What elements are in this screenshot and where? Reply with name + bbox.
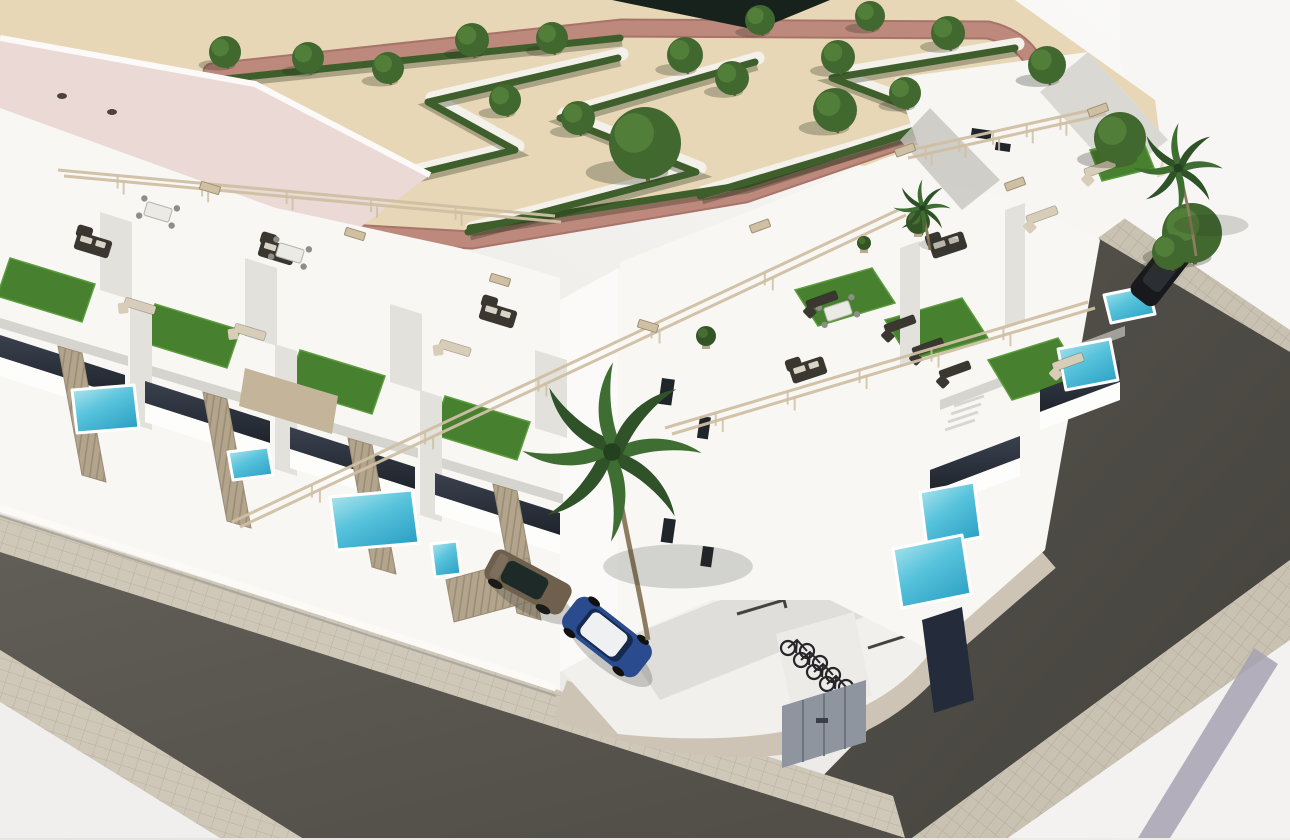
scene-svg bbox=[0, 0, 1290, 840]
tree-highlight bbox=[934, 19, 953, 38]
tree-highlight bbox=[816, 92, 840, 116]
door-handle bbox=[816, 718, 828, 723]
tree-highlight bbox=[564, 104, 583, 123]
divider-wall bbox=[1005, 203, 1025, 329]
tree-highlight bbox=[538, 25, 556, 43]
tree-highlight bbox=[458, 26, 477, 45]
tree-highlight bbox=[614, 113, 654, 153]
tree-highlight bbox=[857, 4, 874, 21]
roof-vent bbox=[107, 109, 117, 115]
tree-highlight bbox=[1098, 116, 1127, 145]
tree-highlight bbox=[211, 39, 229, 57]
palm-shadow bbox=[1174, 214, 1249, 236]
pool bbox=[72, 385, 139, 433]
roof-vent bbox=[57, 93, 67, 99]
tree-highlight bbox=[824, 43, 843, 62]
side-wall bbox=[390, 304, 422, 392]
tree-highlight bbox=[1031, 49, 1052, 70]
palm-crown bbox=[919, 205, 925, 211]
palm-shadow bbox=[919, 237, 967, 251]
pool bbox=[228, 447, 273, 480]
tree-highlight bbox=[718, 64, 737, 83]
tree-highlight bbox=[891, 80, 909, 98]
pool bbox=[893, 535, 971, 608]
tree-highlight bbox=[1155, 237, 1175, 257]
palm-crown bbox=[603, 443, 621, 461]
aerial-render-image bbox=[0, 0, 1290, 840]
pool bbox=[431, 541, 461, 577]
tree-highlight bbox=[670, 40, 690, 60]
tree-highlight bbox=[747, 8, 764, 25]
palm-crown bbox=[1174, 164, 1183, 173]
palm-shadow bbox=[603, 544, 753, 588]
tree-highlight bbox=[294, 45, 312, 63]
pool bbox=[330, 490, 419, 550]
tree-highlight bbox=[491, 87, 509, 105]
tree-highlight bbox=[374, 55, 392, 73]
